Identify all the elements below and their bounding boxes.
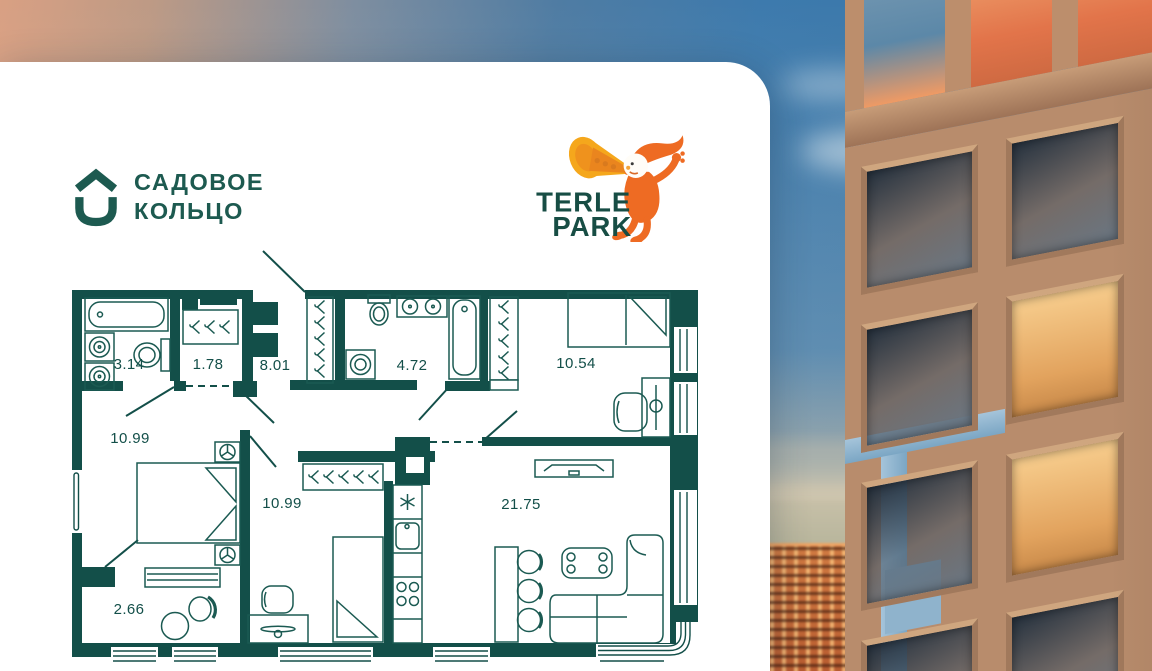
tower-window xyxy=(1006,590,1123,671)
room-area-label: 10.99 xyxy=(110,430,150,447)
pergola-opening xyxy=(864,0,945,108)
room-area-label: 10.99 xyxy=(262,495,302,512)
horn-icon xyxy=(563,132,633,184)
project-name-line2: PARK xyxy=(552,211,632,242)
furniture-bedroom-3 xyxy=(248,464,383,643)
room-area-label: 1.78 xyxy=(193,356,224,373)
facade-lower xyxy=(845,62,1152,671)
tower-window xyxy=(1006,432,1123,583)
furniture-closet xyxy=(183,310,238,344)
blue-accent xyxy=(885,559,941,634)
project-logo: TERLE PARK xyxy=(528,120,706,242)
room-labels: 3.14 1.78 8.01 4.72 10.54 10.99 10.99 21… xyxy=(110,355,596,618)
developer-name-line2: КОЛЬЦО xyxy=(134,197,264,226)
house-icon xyxy=(72,166,120,230)
furniture-balcony xyxy=(162,597,216,640)
furniture-bedroom-1-closet xyxy=(490,297,518,390)
developer-logo-text: САДОВОЕ КОЛЬЦО xyxy=(134,168,264,225)
blue-accent xyxy=(881,436,907,671)
room-area-label: 10.54 xyxy=(556,355,596,372)
room-area-label: 3.14 xyxy=(114,356,145,373)
floorplan: 3.14 1.78 8.01 4.72 10.54 10.99 10.99 21… xyxy=(70,245,710,665)
furniture-living xyxy=(535,460,663,643)
room-area-label: 2.66 xyxy=(114,601,145,618)
tower-window-grid xyxy=(845,62,1152,671)
developer-logo: САДОВОЕ КОЛЬЦО xyxy=(72,166,264,230)
tower-window xyxy=(861,302,978,453)
room-area-label: 4.72 xyxy=(397,357,428,374)
tower-window xyxy=(861,144,978,295)
tower-facade xyxy=(845,0,1152,671)
screen: САДОВОЕ КОЛЬЦО xyxy=(0,0,1152,671)
blue-accent xyxy=(845,409,1005,464)
tower-window xyxy=(861,618,978,671)
room-area-label: 8.01 xyxy=(260,357,291,374)
furniture-hallway-wardrobe xyxy=(307,297,333,383)
floorplan-card: САДОВОЕ КОЛЬЦО xyxy=(0,62,770,671)
furniture-bedroom-2 xyxy=(137,442,240,587)
room-area-label: 21.75 xyxy=(501,496,541,513)
developer-name-line1: САДОВОЕ xyxy=(134,168,264,197)
walls xyxy=(72,290,698,657)
furniture-bathroom-1 xyxy=(85,298,170,390)
tower-window xyxy=(861,460,978,611)
tower-window xyxy=(1006,116,1123,267)
tower-window xyxy=(1006,274,1123,425)
distant-building xyxy=(758,543,850,671)
